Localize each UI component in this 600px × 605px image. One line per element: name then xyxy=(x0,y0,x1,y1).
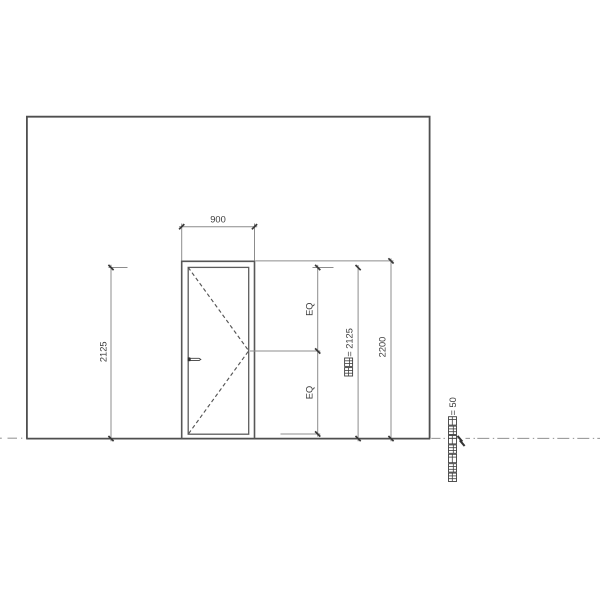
svg-text:2200: 2200 xyxy=(378,337,388,358)
svg-text:2125: 2125 xyxy=(99,341,109,362)
svg-text:EQ: EQ xyxy=(304,386,314,399)
svg-text:900: 900 xyxy=(210,215,226,225)
svg-text:= 2125: = 2125 xyxy=(344,328,354,357)
svg-text:EQ: EQ xyxy=(304,302,314,315)
svg-text:= 50: = 50 xyxy=(448,397,458,415)
